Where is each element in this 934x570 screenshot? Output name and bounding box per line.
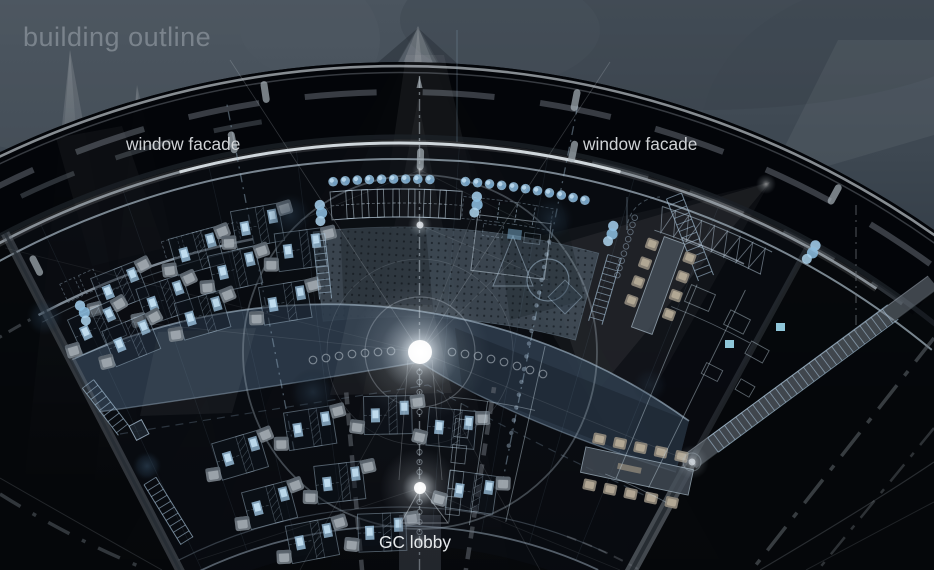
svg-text:building outline: building outline [23,22,211,52]
svg-text:window facade: window facade [582,134,697,154]
svg-text:window facade: window facade [125,134,240,154]
svg-text:GC lobby: GC lobby [379,532,451,552]
